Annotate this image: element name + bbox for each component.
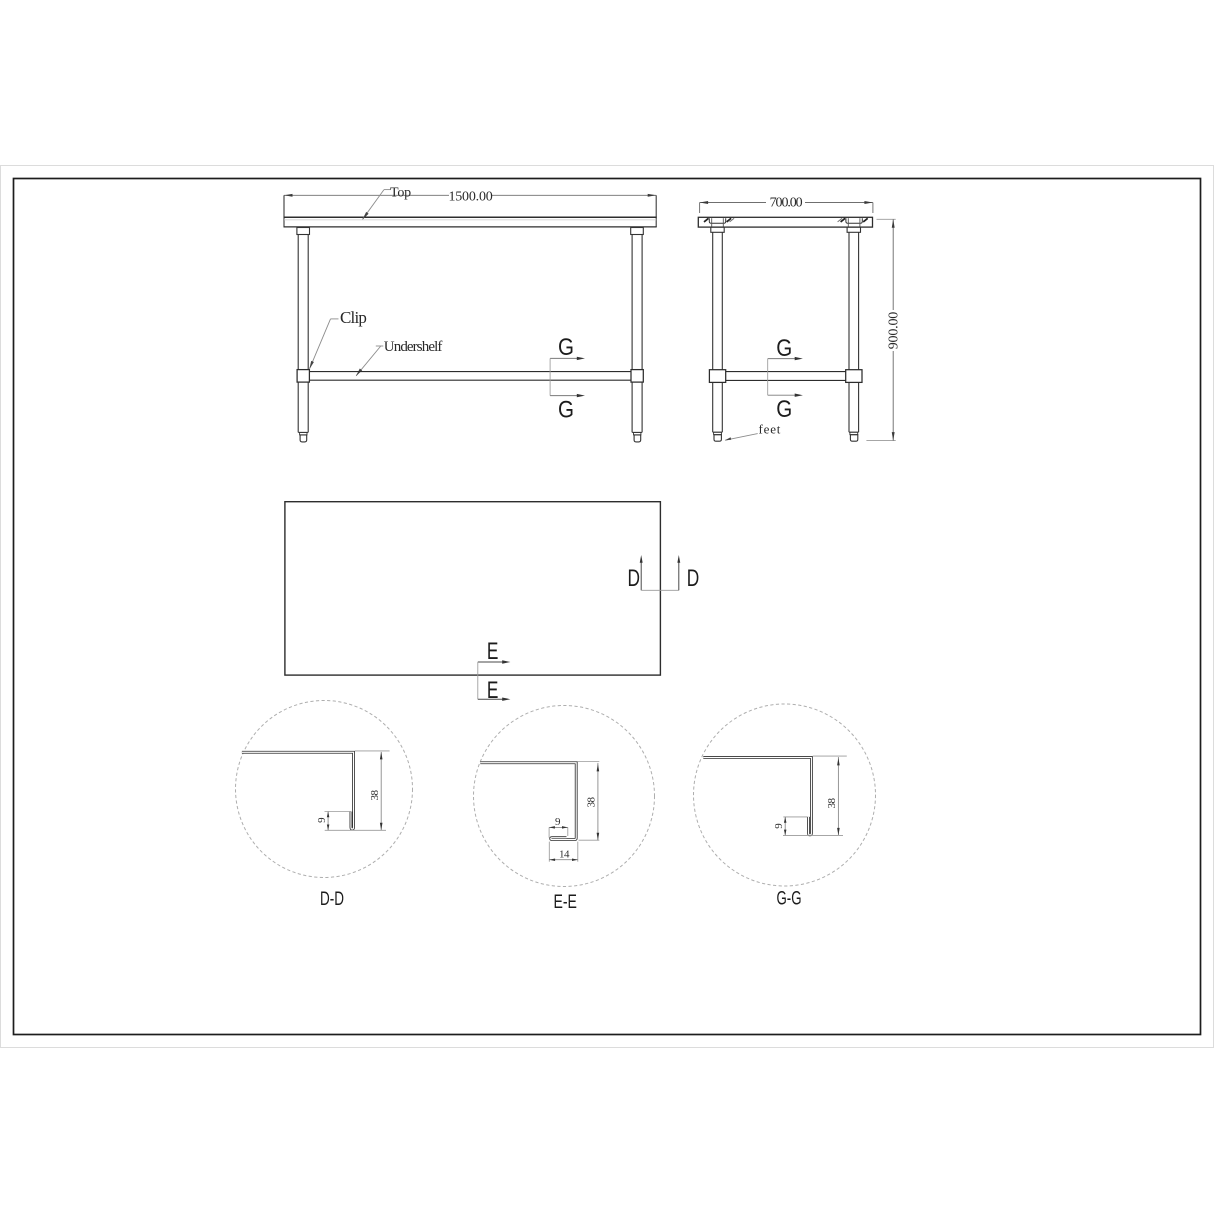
svg-text:38: 38 (369, 790, 381, 801)
svg-text:E: E (487, 677, 499, 704)
svg-text:38: 38 (826, 798, 838, 809)
svg-text:Undershelf: Undershelf (384, 339, 443, 355)
svg-text:D: D (687, 565, 700, 592)
svg-text:G: G (776, 335, 792, 362)
svg-text:G: G (558, 397, 574, 424)
svg-text:1500.00: 1500.00 (448, 189, 492, 204)
svg-text:G: G (558, 334, 574, 361)
svg-text:D-D: D-D (320, 889, 344, 910)
svg-text:feet: feet (759, 422, 782, 437)
svg-text:700.00: 700.00 (770, 196, 803, 211)
svg-text:G-G: G-G (777, 889, 802, 910)
svg-text:G: G (776, 396, 792, 423)
svg-text:38: 38 (586, 797, 598, 808)
svg-text:D: D (627, 565, 640, 592)
svg-text:E: E (487, 638, 499, 665)
svg-text:900.00: 900.00 (887, 312, 902, 350)
svg-text:Clip: Clip (340, 308, 366, 327)
svg-text:E-E: E-E (553, 892, 577, 913)
svg-text:Top: Top (390, 185, 411, 200)
svg-text:14: 14 (559, 848, 570, 860)
